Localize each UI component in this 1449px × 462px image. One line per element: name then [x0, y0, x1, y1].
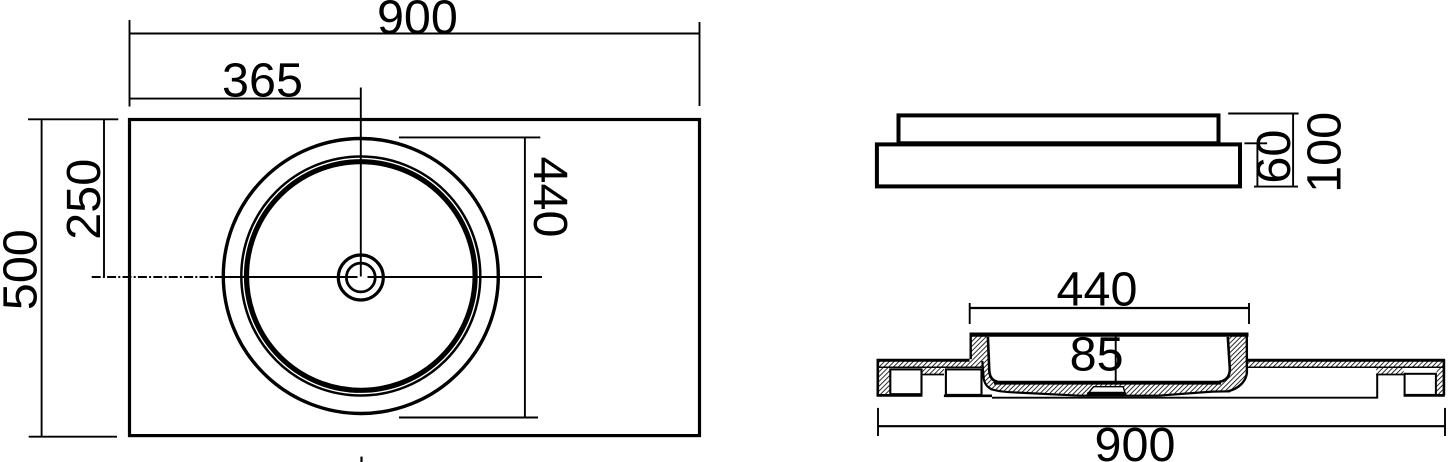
svg-text:900: 900 — [1095, 418, 1176, 462]
svg-text:365: 365 — [222, 54, 303, 108]
svg-text:440: 440 — [1057, 263, 1138, 317]
svg-text:500: 500 — [0, 229, 48, 310]
svg-text:900: 900 — [377, 0, 458, 45]
svg-text:100: 100 — [1298, 112, 1352, 193]
svg-text:60: 60 — [1247, 130, 1301, 184]
svg-text:250: 250 — [57, 159, 111, 240]
svg-text:440: 440 — [523, 157, 577, 238]
svg-text:85: 85 — [1070, 328, 1124, 382]
